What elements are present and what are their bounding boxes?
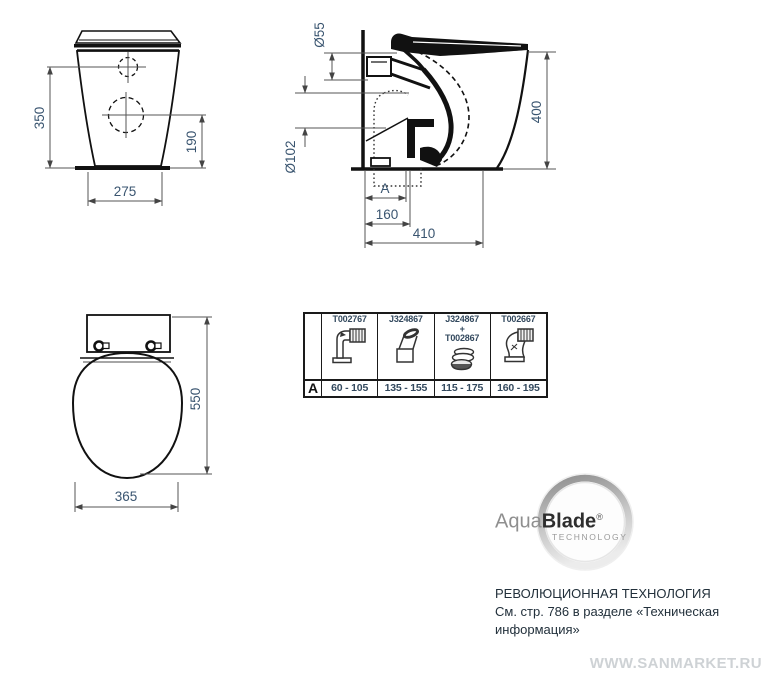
part-code: T002767 [322, 315, 377, 325]
table-corner-cell [305, 314, 321, 379]
table-col-j324867: J324867 [377, 314, 433, 379]
range-value: 60 - 105 [321, 379, 377, 396]
side-shell [497, 50, 528, 168]
table-row-label: A [305, 379, 321, 396]
info-line-3: информация» [495, 621, 770, 639]
dim-top-width: 365 [115, 489, 138, 504]
dim-side-spigot: Ø55 [312, 22, 327, 48]
info-line-1: РЕВОЛЮЦИОННАЯ ТЕХНОЛОГИЯ [495, 585, 770, 603]
logo-brand-blade: Blade [542, 511, 596, 533]
range-value: 160 - 195 [490, 379, 546, 396]
part-code: T002667 [491, 315, 546, 325]
front-view: 350 190 275 [32, 31, 206, 206]
info-text: РЕВОЛЮЦИОННАЯ ТЕХНОЛОГИЯ См. стр. 786 в … [495, 585, 770, 639]
top-view: 550 365 [73, 315, 212, 512]
dim-side-outlet: Ø102 [283, 140, 298, 173]
logo-subtitle: TECHNOLOGY [552, 532, 655, 542]
s-bend-corrugated-pipe-icon [491, 325, 546, 367]
top-hinge-right [147, 342, 156, 351]
dim-side-height: 400 [529, 101, 544, 124]
angled-connector-icon [378, 325, 433, 367]
table-col-j324867-t002867: J324867 + T002867 [434, 314, 490, 379]
front-lid [76, 31, 180, 43]
part-code: T002867 [435, 334, 490, 344]
dim-front-base-width: 275 [114, 184, 137, 199]
side-flush-inlet [367, 57, 391, 76]
registered-mark: ® [596, 512, 603, 522]
top-seat-lid [73, 353, 182, 478]
connector-table: T002767 J324867 [303, 312, 548, 398]
side-seat [391, 33, 528, 56]
dim-front-inlet-height: 190 [184, 131, 199, 154]
part-code: J324867 [378, 315, 433, 325]
dim-front-height: 350 [32, 107, 47, 130]
top-hinge-left [95, 342, 104, 351]
dim-side-rough-in: A [380, 181, 389, 196]
dim-side-outlet-offset: 160 [376, 207, 399, 222]
site-watermark: WWW.SANMARKET.RU [590, 655, 762, 672]
range-value: 115 - 175 [434, 379, 490, 396]
dim-top-depth: 550 [188, 388, 203, 411]
side-view: Ø55 Ø102 400 A 160 410 [283, 22, 556, 248]
logo-brand-aqua: Aqua [495, 511, 542, 533]
offset-ring-adapter-icon [435, 344, 490, 374]
range-value: 135 - 155 [377, 379, 433, 396]
info-line-2: См. стр. 786 в разделе «Техническая [495, 603, 770, 621]
dim-side-depth: 410 [413, 226, 436, 241]
table-col-t002767: T002767 [321, 314, 377, 379]
aquablade-logo: AquaBlade® TECHNOLOGY [495, 506, 655, 542]
elbow-corrugated-pipe-icon [322, 325, 377, 367]
table-col-t002667: T002667 [490, 314, 546, 379]
catalog-page: 350 190 275 [0, 0, 770, 680]
